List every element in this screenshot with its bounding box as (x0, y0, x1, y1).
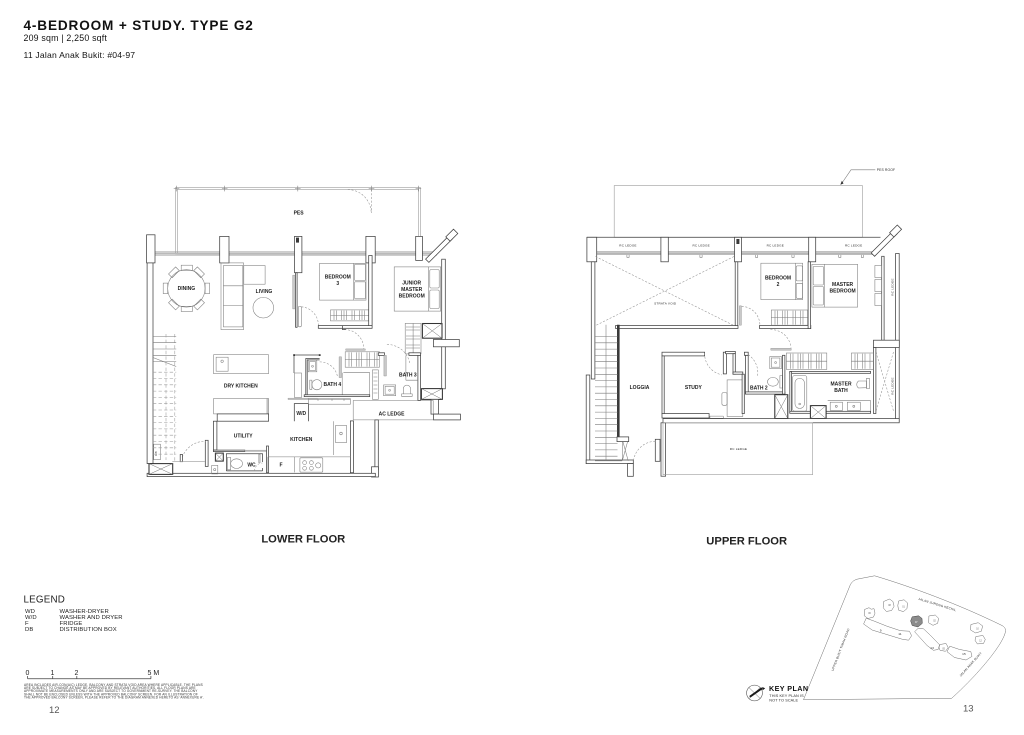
svg-text:NOT TO SCALE: NOT TO SCALE (769, 698, 798, 702)
svg-text:BEDROOM: BEDROOM (830, 289, 856, 295)
svg-text:UTILITY: UTILITY (234, 434, 254, 440)
svg-text:LEGEND: LEGEND (24, 595, 66, 606)
svg-text:12: 12 (49, 705, 60, 716)
svg-text:RC LEDGE: RC LEDGE (730, 447, 747, 451)
svg-text:UPPER FLOOR: UPPER FLOOR (706, 536, 787, 548)
svg-text:STUDY: STUDY (685, 385, 703, 391)
svg-text:FRIDGE: FRIDGE (60, 621, 83, 627)
svg-text:LOWER FLOOR: LOWER FLOOR (261, 534, 345, 546)
svg-text:RC LEDGE: RC LEDGE (692, 243, 709, 247)
svg-text:W/D: W/D (25, 615, 37, 621)
svg-text:LOGGIA: LOGGIA (630, 385, 650, 391)
svg-text:STRATA VOID: STRATA VOID (654, 302, 677, 306)
svg-text:F: F (25, 621, 29, 627)
svg-text:DRY KITCHEN: DRY KITCHEN (224, 384, 258, 390)
svg-text:11: 11 (898, 632, 902, 636)
svg-text:13: 13 (963, 704, 974, 715)
svg-text:13: 13 (930, 646, 934, 650)
svg-text:BEDROOM: BEDROOM (399, 294, 425, 300)
svg-text:WASHER-DRYER: WASHER-DRYER (60, 609, 109, 615)
svg-text:BATH 2: BATH 2 (750, 386, 768, 392)
svg-text:DB: DB (25, 627, 33, 633)
svg-text:RC LEDGE: RC LEDGE (890, 278, 894, 295)
svg-text:DISTRIBUTION BOX: DISTRIBUTION BOX (60, 627, 117, 633)
svg-text:LIVING: LIVING (256, 289, 273, 295)
svg-text:BEDROOM: BEDROOM (325, 274, 351, 280)
svg-text:BEDROOM: BEDROOM (765, 275, 791, 281)
svg-text:BATH: BATH (834, 388, 848, 394)
svg-text:BATH 3: BATH 3 (399, 372, 417, 378)
svg-text:F: F (279, 462, 282, 468)
svg-text:15: 15 (962, 652, 966, 656)
svg-text:9: 9 (880, 629, 882, 633)
svg-text:2: 2 (777, 282, 780, 288)
svg-text:JUNIOR: JUNIOR (402, 280, 421, 286)
svg-text:PES: PES (294, 211, 305, 217)
svg-text:RC LEDGE: RC LEDGE (890, 377, 894, 394)
svg-text:WD: WD (25, 609, 35, 615)
svg-text:RC LEDGE: RC LEDGE (767, 243, 784, 247)
svg-text:W/D: W/D (296, 411, 306, 417)
svg-text:11 Jalan Anak Bukit: #04-97: 11 Jalan Anak Bukit: #04-97 (24, 50, 136, 60)
svg-text:RC LEDGE: RC LEDGE (619, 243, 636, 247)
svg-text:WASHER AND DRYER: WASHER AND DRYER (60, 615, 123, 621)
svg-text:DINING: DINING (178, 286, 196, 292)
svg-text:BATH 4: BATH 4 (323, 382, 341, 388)
svg-text:KEY PLAN: KEY PLAN (769, 684, 808, 693)
svg-text:WC: WC (247, 462, 256, 468)
svg-text:MASTER: MASTER (401, 287, 423, 293)
svg-text:PES ROOF: PES ROOF (877, 168, 895, 172)
svg-text:DB: DB (154, 451, 158, 456)
svg-text:AC LEDGE: AC LEDGE (379, 412, 406, 418)
svg-text:RC LEDGE: RC LEDGE (845, 243, 862, 247)
svg-text:5 M: 5 M (148, 670, 160, 677)
svg-text:MASTER: MASTER (832, 282, 854, 288)
svg-text:3: 3 (336, 281, 339, 287)
svg-text:209 sqm | 2,250 sqft: 209 sqm | 2,250 sqft (24, 33, 108, 43)
svg-text:THE APPROVED BALCONY SCREEN, P: THE APPROVED BALCONY SCREEN, PLEASE REFE… (24, 695, 204, 699)
svg-text:KITCHEN: KITCHEN (290, 437, 313, 443)
svg-text:MASTER: MASTER (830, 381, 852, 387)
svg-text:4-BEDROOM + STUDY. TYPE G2: 4-BEDROOM + STUDY. TYPE G2 (24, 18, 254, 33)
